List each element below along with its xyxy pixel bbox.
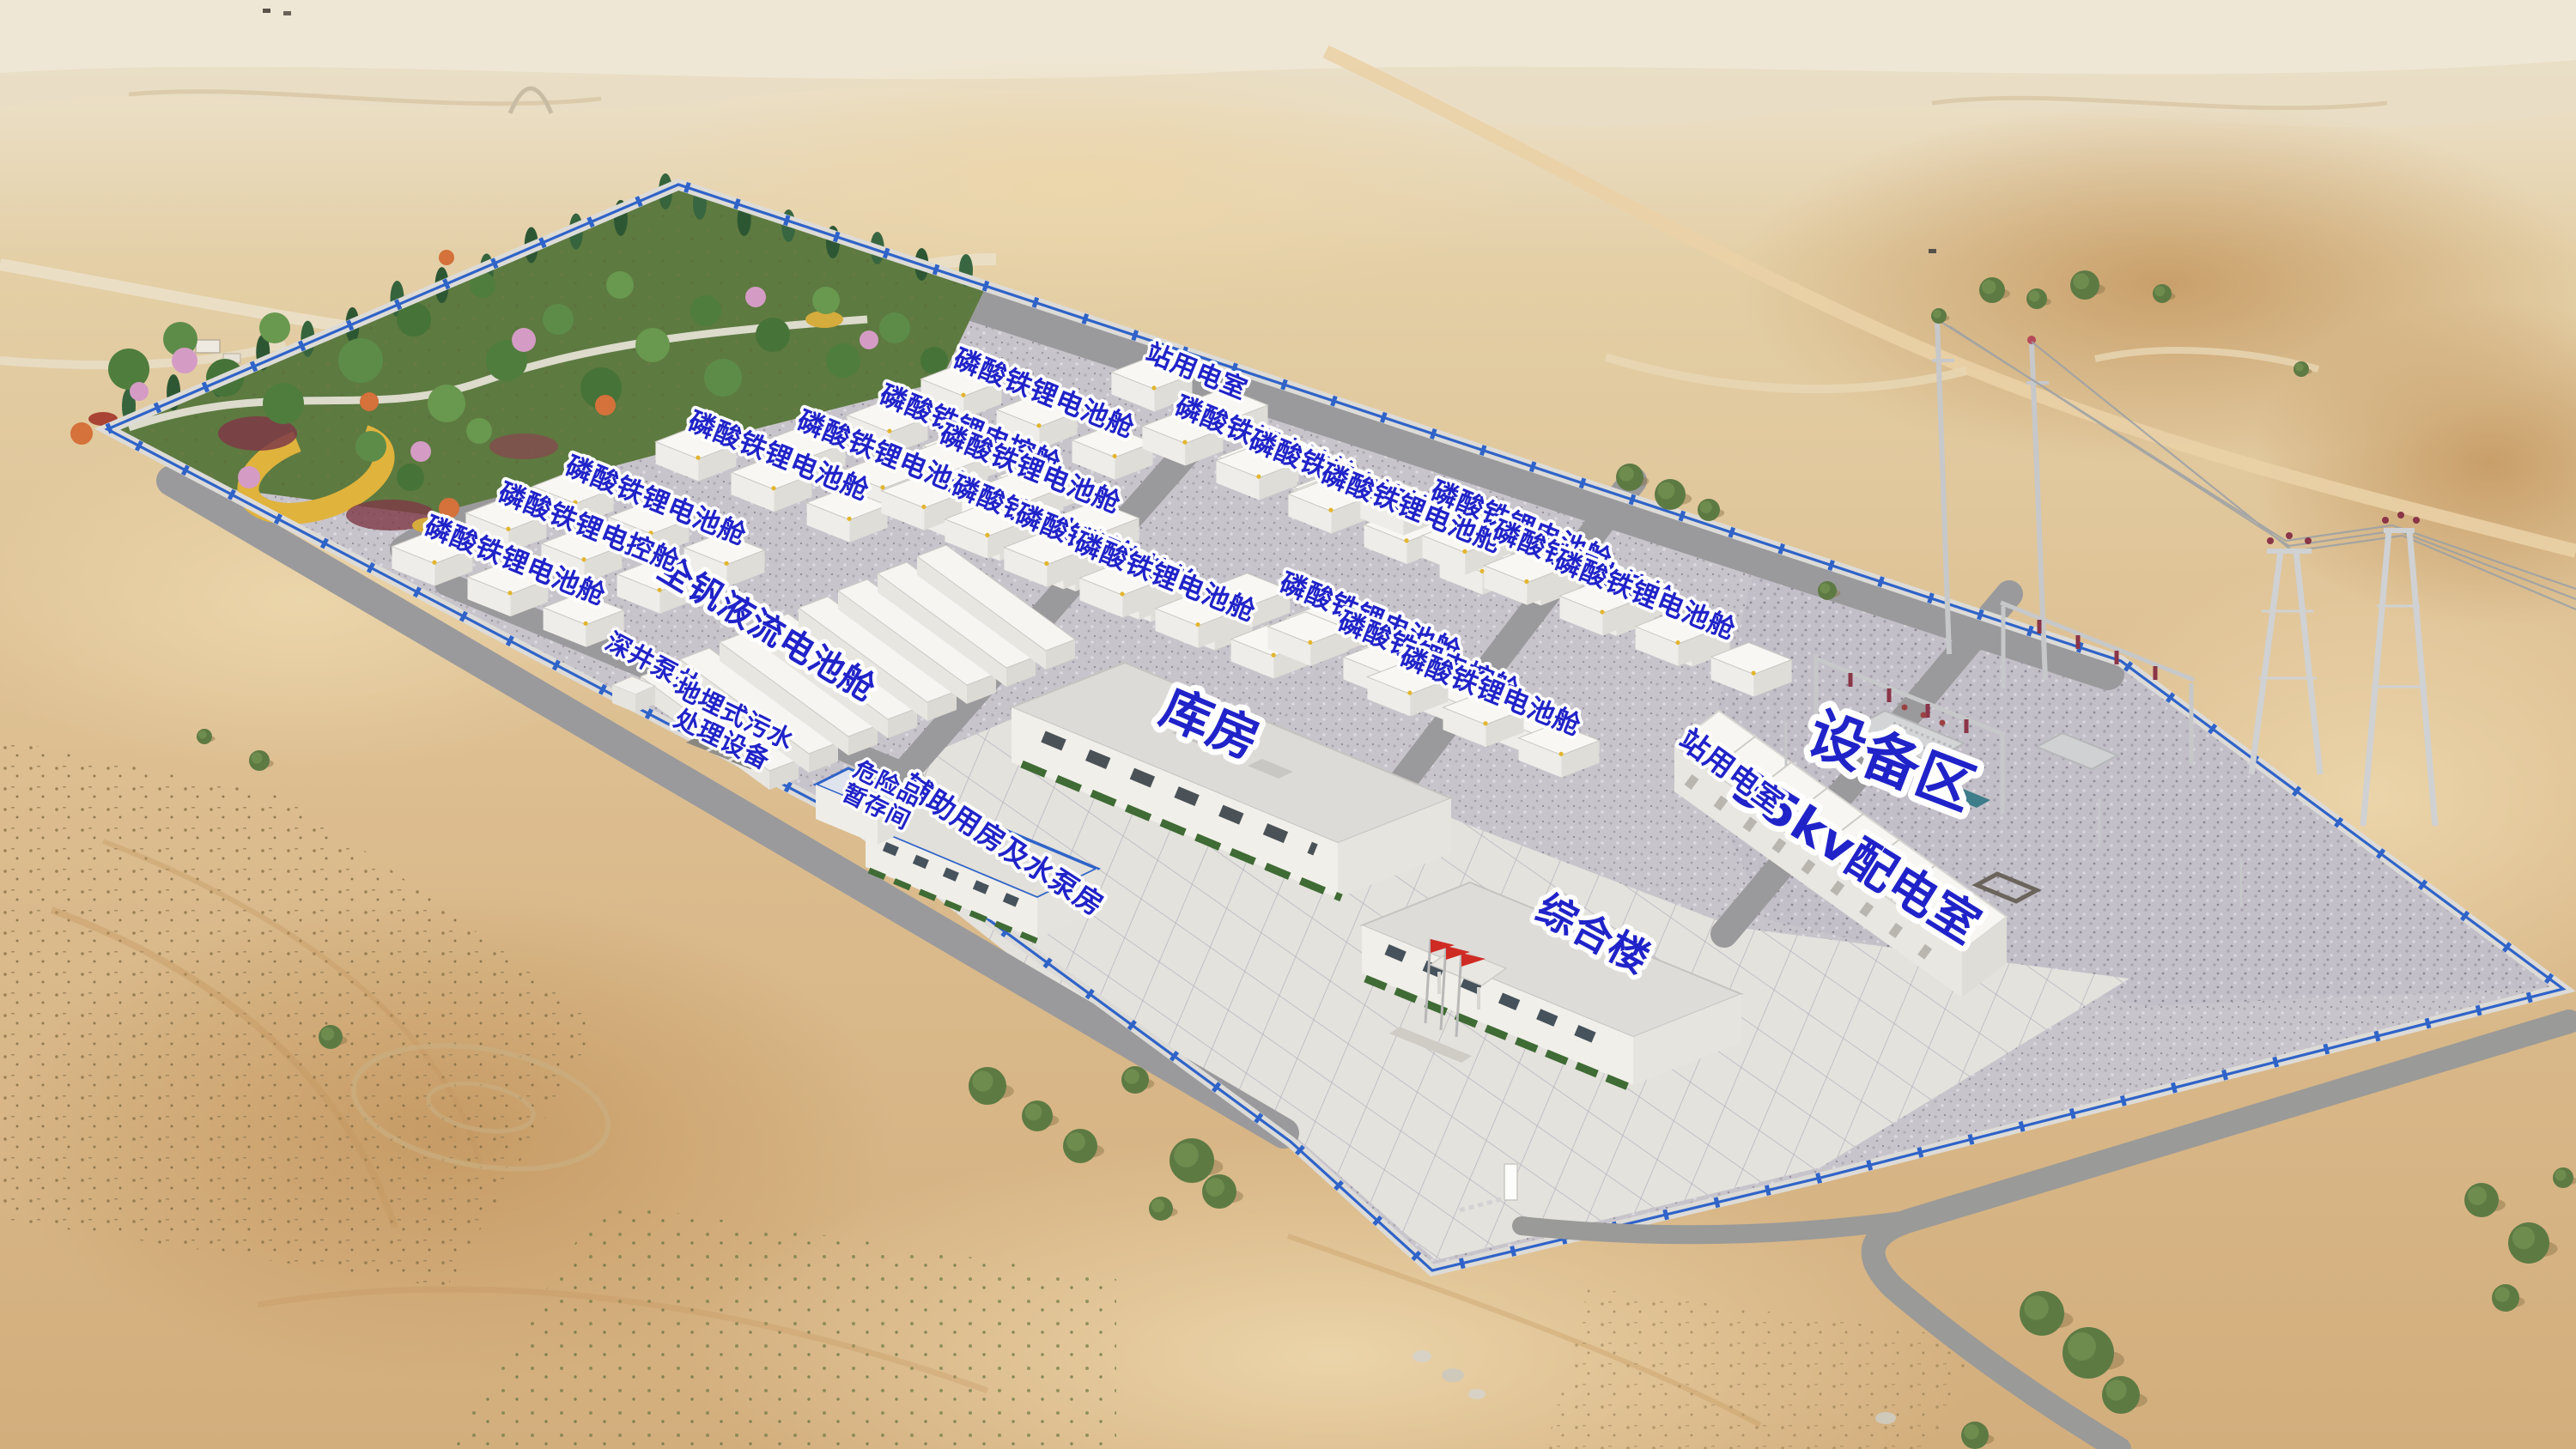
tree — [1700, 501, 1712, 513]
orange-tree — [360, 392, 379, 411]
tree — [2555, 1169, 2566, 1180]
gate-pillar — [1504, 1164, 1517, 1200]
tree — [1066, 1132, 1085, 1151]
garden-tree — [826, 343, 860, 378]
garden-tree — [397, 464, 424, 491]
garden-tree — [259, 312, 290, 343]
tree — [2512, 1227, 2535, 1249]
garden-tree — [635, 328, 670, 362]
scene-svg: 设备区35kv配电室库房综合楼辅助用房及水泵房站用电室站用电室危险品暂存间深井泵… — [0, 0, 2576, 1449]
tree — [972, 1070, 993, 1091]
tree — [2295, 363, 2304, 372]
pink-tree — [130, 382, 149, 401]
tree — [2073, 273, 2089, 289]
pink-tree — [172, 348, 197, 373]
pink-tree — [238, 466, 260, 488]
tree — [1658, 482, 1675, 500]
tree — [2105, 1379, 2126, 1400]
pink-tree — [745, 287, 766, 307]
garden-tree — [812, 287, 840, 314]
tree — [321, 1028, 334, 1040]
tree — [1820, 583, 1830, 593]
garden-tree — [428, 385, 465, 422]
garden-tree — [704, 359, 742, 397]
pink-tree — [860, 330, 878, 349]
tree — [2494, 1287, 2510, 1302]
garden-tree — [879, 312, 910, 343]
tree — [2028, 290, 2039, 301]
tree — [2068, 1332, 2096, 1361]
tree — [1933, 310, 1941, 318]
tree — [1206, 1178, 1224, 1197]
orange-tree — [70, 422, 93, 445]
tree — [2468, 1186, 2487, 1205]
tree — [1964, 1424, 1979, 1440]
tree — [2154, 286, 2165, 296]
garden-tree — [606, 271, 634, 299]
garden-tree — [543, 304, 574, 335]
garden-tree — [690, 295, 721, 326]
tree — [198, 731, 207, 739]
tree — [1025, 1104, 1042, 1121]
pink-tree — [410, 441, 431, 462]
garden-tree — [338, 338, 383, 383]
garden-tree — [466, 418, 492, 444]
garden-tree — [756, 318, 790, 352]
tree — [251, 752, 262, 763]
tree — [1124, 1069, 1139, 1084]
tree — [1982, 280, 1996, 294]
tree — [2024, 1295, 2049, 1320]
orange-tree — [595, 395, 616, 415]
tree — [1619, 466, 1634, 482]
tree — [1174, 1143, 1199, 1167]
garden-tree — [263, 383, 304, 424]
aerial-render-stage: 设备区35kv配电室库房综合楼辅助用房及水泵房站用电室站用电室危险品暂存间深井泵… — [0, 0, 2576, 1449]
pink-tree — [512, 328, 536, 352]
orange-tree — [439, 250, 454, 265]
tree — [1151, 1199, 1164, 1212]
garden-tree — [355, 431, 386, 462]
